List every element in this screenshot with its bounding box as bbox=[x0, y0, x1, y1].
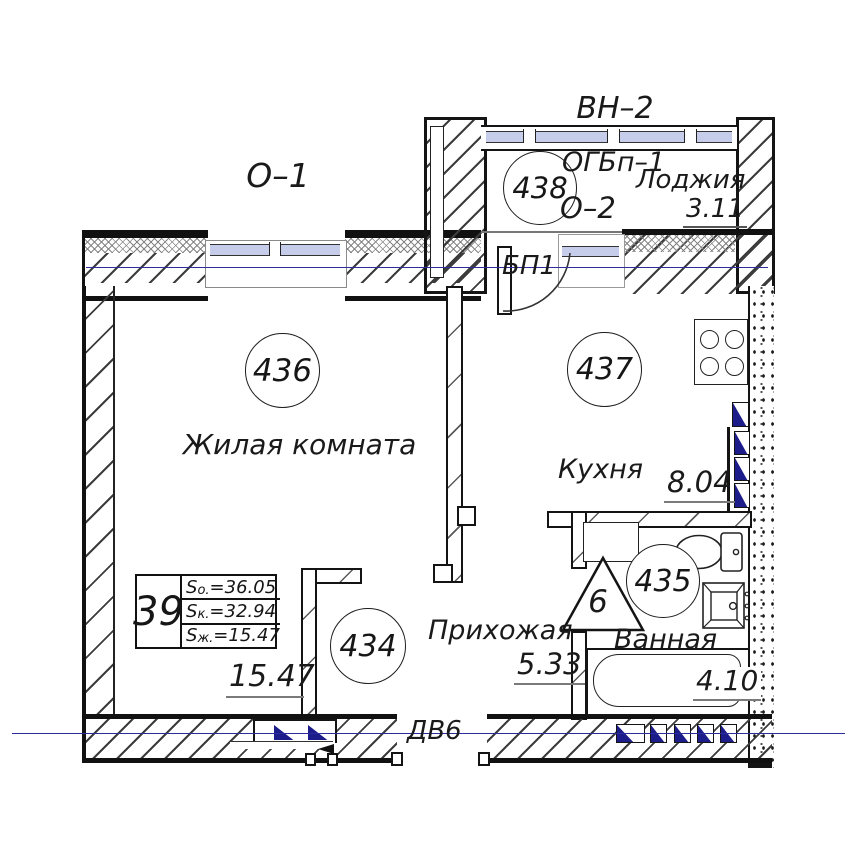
room-name-loggia: Лоджия bbox=[636, 167, 745, 193]
room-name-living: Жилая комната bbox=[183, 431, 408, 459]
apartment-info-table: 39 Sо.=36.05 Sк.=32.94 Sж.=15.47 bbox=[135, 574, 277, 649]
area-prefix: S bbox=[186, 577, 197, 598]
area-value: =32.94 bbox=[209, 601, 276, 622]
floor-plan: 438 436 437 435 434 ВН–2 О–1 ОГБп–1 О–2 … bbox=[0, 0, 853, 853]
room-number: 436 bbox=[253, 353, 312, 389]
room-name-hall: Прихожая bbox=[428, 617, 573, 644]
room-name-kitchen: Кухня bbox=[558, 456, 643, 483]
marker-bp1: БП1 bbox=[502, 253, 556, 279]
room-circle-bath: 435 bbox=[626, 544, 700, 618]
room-area-loggia: 3.11 bbox=[683, 196, 747, 228]
room-name-bath: Ванная bbox=[614, 626, 717, 653]
room-area-bath: 4.10 bbox=[693, 667, 761, 701]
area-prefix: S bbox=[186, 601, 197, 622]
room-number: 435 bbox=[634, 564, 691, 599]
room-number: 437 bbox=[576, 352, 633, 387]
table-row-living-area: Sж.=15.47 bbox=[182, 625, 280, 647]
area-value: =36.05 bbox=[210, 577, 277, 598]
table-row-apartment-area: Sк.=32.94 bbox=[182, 600, 280, 624]
apartment-number: 39 bbox=[137, 576, 182, 647]
shaft-number: 6 bbox=[580, 587, 616, 618]
entry-arrow-icon bbox=[318, 744, 334, 754]
room-number: 434 bbox=[339, 629, 396, 664]
room-area-hall: 5.33 bbox=[514, 650, 585, 685]
room-circle-hall: 434 bbox=[330, 608, 406, 684]
table-row-total-area: Sо.=36.05 bbox=[182, 576, 280, 600]
sink-icon bbox=[703, 583, 749, 628]
marker-o2: О–2 bbox=[560, 194, 616, 223]
axis-line-top bbox=[86, 267, 768, 268]
area-prefix: S bbox=[186, 625, 197, 646]
area-sub: ж. bbox=[197, 631, 213, 646]
area-sub: о. bbox=[197, 583, 209, 598]
room-circle-kitchen: 437 bbox=[567, 332, 642, 407]
marker-vn2: ВН–2 bbox=[560, 94, 670, 124]
marker-o1: О–1 bbox=[228, 159, 328, 192]
room-circle-living: 436 bbox=[245, 333, 320, 408]
room-area-kitchen: 8.04 bbox=[664, 468, 735, 503]
room-area-living: 15.47 bbox=[226, 662, 304, 698]
marker-dv6: ДВ6 bbox=[407, 718, 462, 744]
area-sub: к. bbox=[197, 607, 209, 622]
area-value: =15.47 bbox=[213, 625, 280, 646]
